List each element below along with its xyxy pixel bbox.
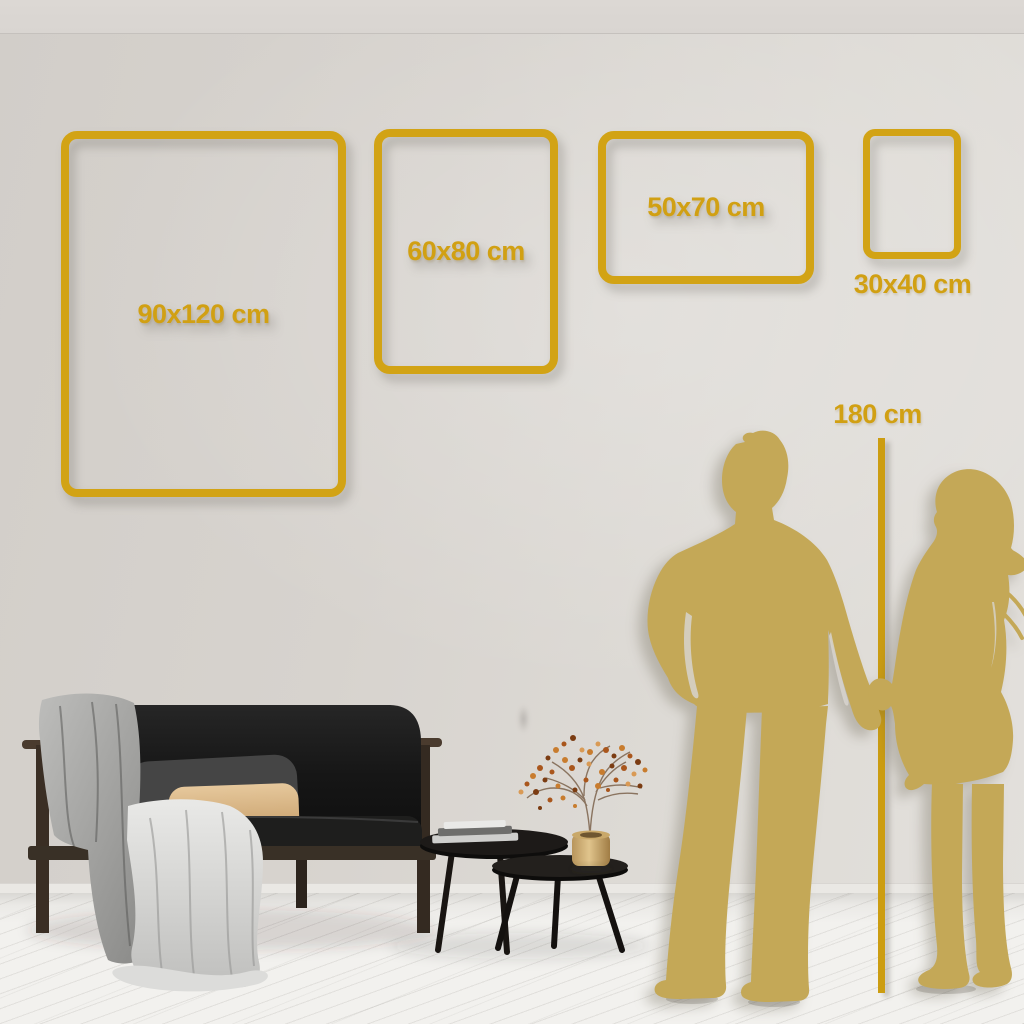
woman-hair-wisps	[1004, 552, 1024, 638]
plant-branches	[527, 746, 642, 836]
small-table-top	[492, 855, 628, 877]
sofa-rail	[28, 846, 436, 860]
book-middle	[438, 826, 512, 837]
frame-30x40	[863, 129, 961, 259]
wood-floor	[0, 893, 1024, 1024]
brass-vase	[570, 831, 612, 874]
sofa-pillow-dark	[126, 754, 300, 839]
small-table-edge	[492, 859, 628, 881]
ceiling-strip	[0, 0, 1024, 34]
large-table-edge	[420, 833, 568, 859]
large-table-top	[420, 829, 568, 855]
frame-50x70: 50x70 cm	[598, 131, 814, 284]
plant-berries	[519, 735, 648, 810]
sofa-arm-cap-right	[386, 738, 442, 747]
frame-90x120: 90x120 cm	[61, 131, 346, 497]
sofa-seat-cushion	[92, 816, 422, 860]
vase-and-plant	[519, 735, 648, 873]
woman-body	[868, 469, 1024, 790]
sofa-seat-highlight	[96, 817, 418, 822]
frame-60x80: 60x80 cm	[374, 129, 558, 374]
sofa-pillow-beige	[168, 783, 300, 845]
size-label-30x40: 30x40 cm	[836, 271, 989, 298]
size-label-60x80: 60x80 cm	[407, 238, 525, 265]
sofa-shell	[96, 705, 421, 847]
woman-arm-gap	[991, 602, 996, 668]
wall-smudge	[518, 705, 529, 733]
poster-size-guide-scene: 90x120 cm 60x80 cm 50x70 cm 30x40 cm 180…	[0, 0, 1024, 1024]
size-label-90x120: 90x120 cm	[137, 301, 269, 328]
book-stack	[432, 820, 519, 844]
man-arm-gaps	[684, 612, 849, 706]
height-reference-line	[878, 438, 885, 993]
book-bottom	[432, 832, 518, 843]
height-reference-label: 180 cm	[820, 401, 935, 428]
man-body	[647, 431, 881, 731]
sofa-arm-cap-left	[22, 740, 110, 749]
book-top	[444, 820, 506, 829]
size-label-50x70: 50x70 cm	[647, 194, 765, 221]
